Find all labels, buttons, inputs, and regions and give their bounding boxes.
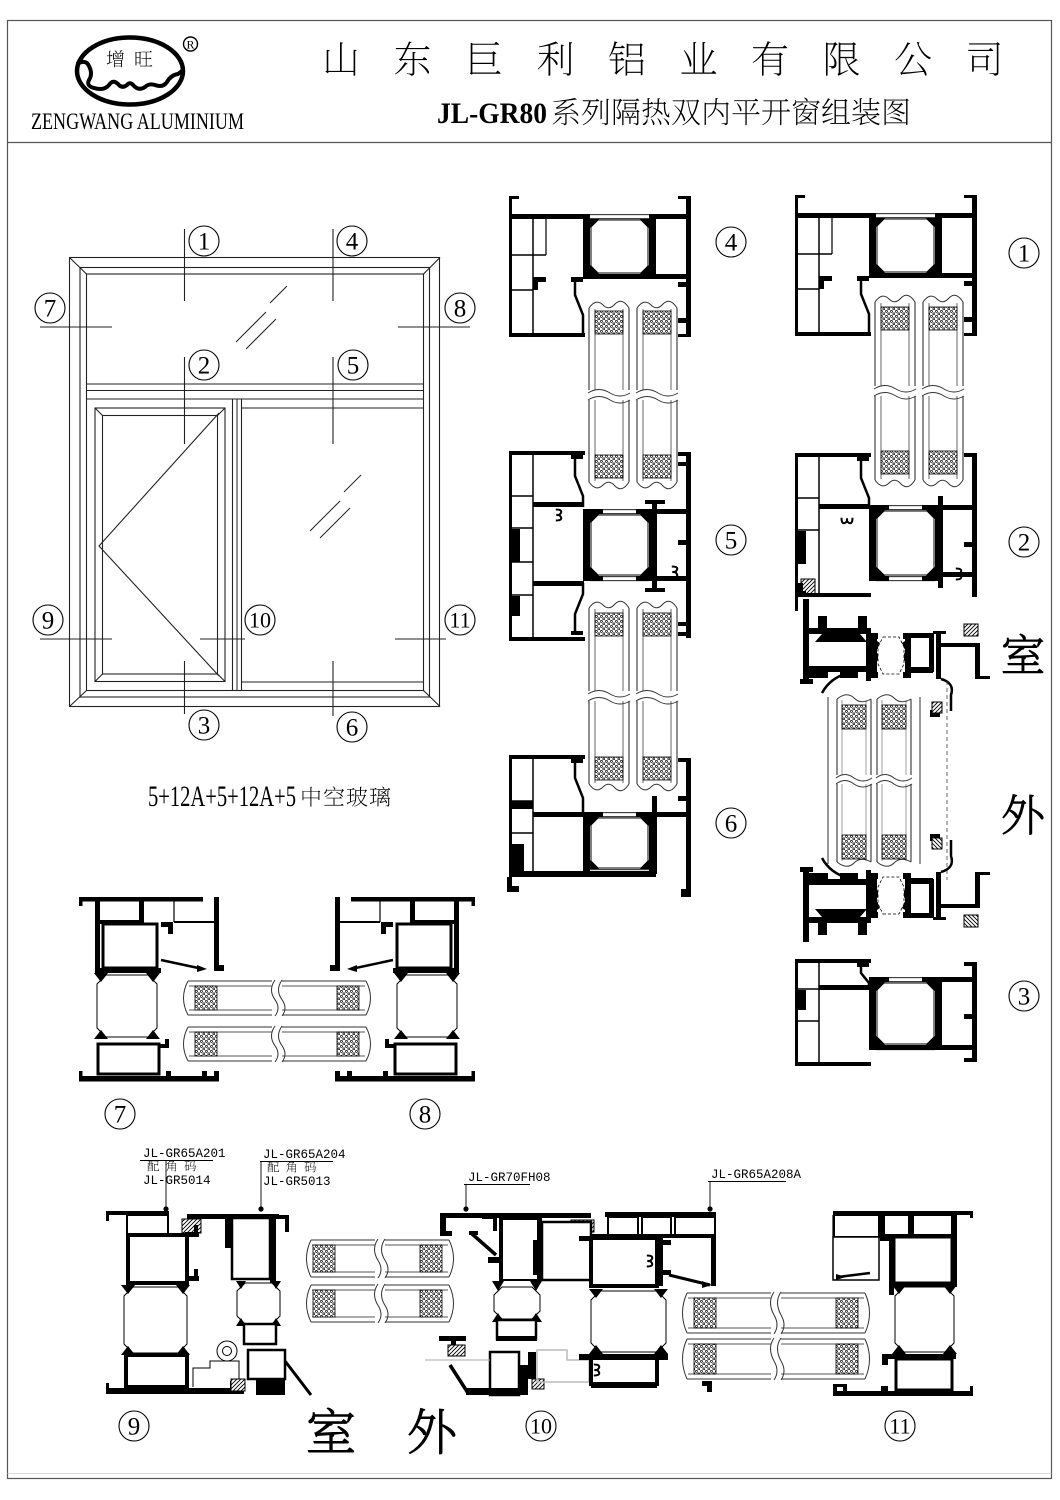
svg-text:1: 1 (1018, 241, 1031, 268)
svg-text:JL-GR65A208A: JL-GR65A208A (711, 1168, 802, 1182)
svg-text:8: 8 (454, 296, 467, 323)
svg-text:R: R (186, 38, 194, 52)
svg-text:4: 4 (725, 230, 738, 257)
svg-text:1: 1 (198, 229, 211, 256)
svg-text:3: 3 (198, 713, 211, 740)
svg-text:8: 8 (419, 1102, 432, 1129)
svg-text:4: 4 (346, 229, 359, 256)
svg-text:10: 10 (249, 608, 271, 633)
svg-text:JL-GR65A201: JL-GR65A201 (143, 1147, 226, 1161)
svg-text:6: 6 (346, 715, 359, 742)
svg-text:JL-GR70FH08: JL-GR70FH08 (468, 1171, 551, 1185)
svg-text:9: 9 (42, 608, 55, 635)
svg-text:3: 3 (1018, 984, 1031, 1011)
svg-text:5: 5 (725, 528, 738, 555)
svg-text:7: 7 (114, 1102, 127, 1129)
svg-text:5: 5 (347, 353, 360, 380)
svg-text:2: 2 (198, 353, 211, 380)
svg-text:JL-GR65A204: JL-GR65A204 (263, 1148, 346, 1162)
svg-text:9: 9 (128, 1414, 141, 1441)
svg-text:JL-GR80: JL-GR80 (437, 97, 547, 130)
svg-text:JL-GR5013: JL-GR5013 (263, 1175, 331, 1189)
svg-text:5+12A+5+12A+5: 5+12A+5+12A+5 (148, 780, 296, 813)
svg-text:7: 7 (44, 296, 57, 323)
svg-text:10: 10 (530, 1414, 552, 1439)
svg-text:11: 11 (449, 608, 470, 633)
svg-text:6: 6 (725, 811, 738, 838)
svg-text:11: 11 (889, 1414, 910, 1439)
svg-text:ZENGWANG ALUMINIUM: ZENGWANG ALUMINIUM (31, 109, 244, 134)
svg-text:2: 2 (1018, 530, 1031, 557)
svg-text:JL-GR5014: JL-GR5014 (143, 1174, 211, 1188)
